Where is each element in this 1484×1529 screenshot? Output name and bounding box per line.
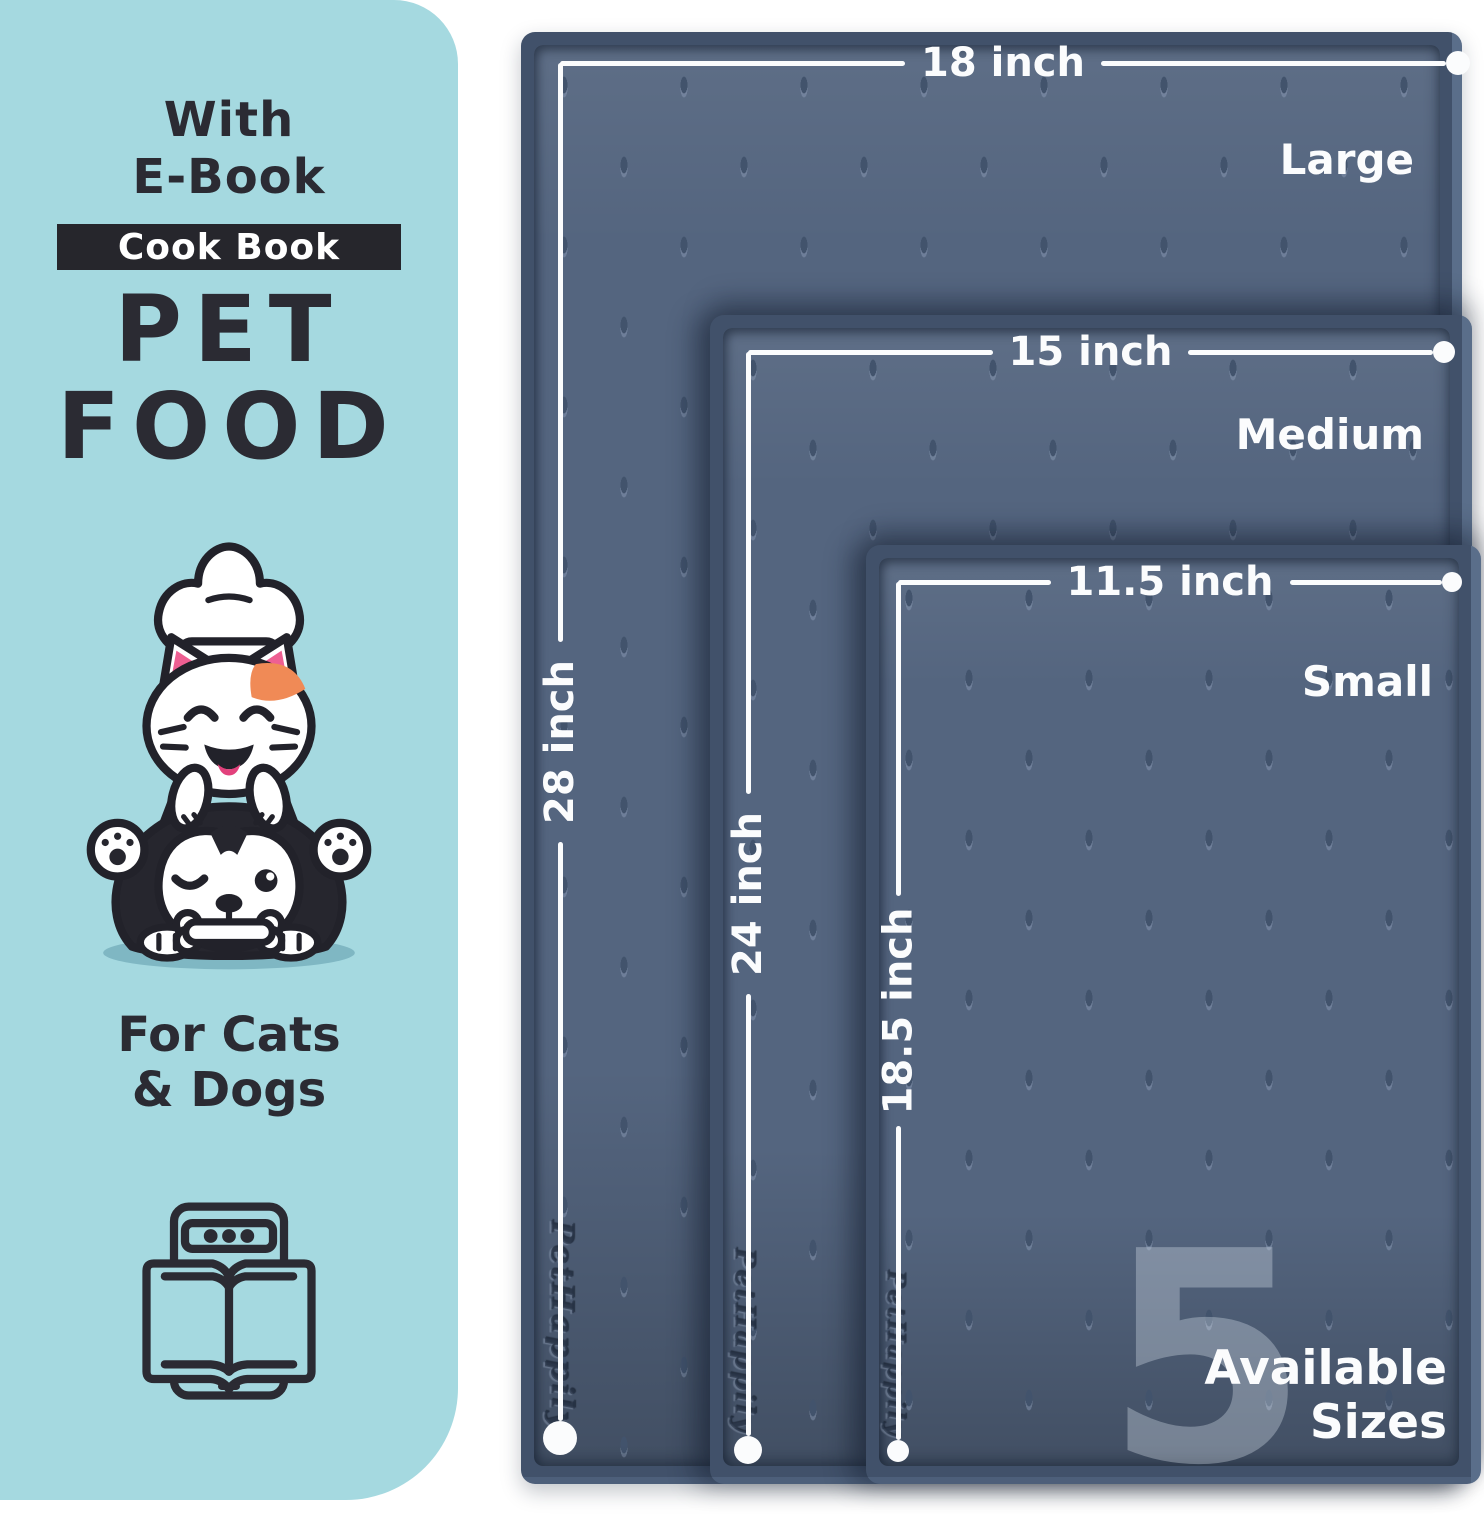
dimension-line xyxy=(746,994,751,1436)
dimension-line xyxy=(1101,61,1446,66)
mat-small-size-label: Small xyxy=(1302,657,1433,706)
dimension-line xyxy=(896,582,901,896)
height-dimension-label: 28 inch xyxy=(537,660,583,824)
dimension-line xyxy=(898,580,1051,585)
dimension-end-dot xyxy=(1446,51,1470,75)
husky-dog xyxy=(91,792,367,958)
audience: For Cats & Dogs xyxy=(0,1008,458,1118)
cookbook-badge-label: Cook Book xyxy=(118,227,340,268)
width-dimension-label: 18 inch xyxy=(905,40,1101,86)
dimension-line xyxy=(1188,350,1433,355)
dimension-line xyxy=(1290,580,1443,585)
cat-chef xyxy=(147,547,312,795)
cookbook-badge: Cook Book xyxy=(57,224,401,270)
product-title-line1: PET xyxy=(0,282,458,379)
width-dimension-label: 15 inch xyxy=(993,329,1189,375)
available-sizes-badge: 5 Available Sizes xyxy=(1111,1250,1451,1460)
mat-large-height-dimension: 28 inch xyxy=(538,63,582,1455)
mat-small: 11.5 inch 18.5 inch Small PetHappily 5 A… xyxy=(866,545,1481,1484)
dimension-end-dot xyxy=(1442,572,1462,592)
product-title: PET FOOD xyxy=(0,282,458,475)
dimension-line xyxy=(560,61,905,66)
headline-line1: With xyxy=(0,92,458,149)
audience-line1: For Cats xyxy=(0,1008,458,1063)
info-panel: With E-Book Cook Book PET FOOD xyxy=(0,0,458,1500)
width-dimension-label: 11.5 inch xyxy=(1051,559,1290,605)
mat-small-width-dimension: 11.5 inch xyxy=(898,560,1462,604)
mat-medium-size-label: Medium xyxy=(1236,410,1424,459)
headline: With E-Book xyxy=(0,92,458,205)
mat-medium-height-dimension: 24 inch xyxy=(726,352,770,1464)
ebook-icon xyxy=(119,1182,339,1422)
product-title-line2: FOOD xyxy=(0,379,458,476)
mat-small-height-dimension: 18.5 inch xyxy=(876,582,920,1462)
audience-line2: & Dogs xyxy=(0,1063,458,1118)
dimension-line xyxy=(558,63,563,642)
dimension-line xyxy=(746,352,751,794)
headline-line2: E-Book xyxy=(0,149,458,206)
cat-dog-chef-illustration xyxy=(64,468,394,988)
dimension-end-dot xyxy=(543,1421,577,1455)
dimension-line xyxy=(558,842,563,1421)
dimension-end-dot xyxy=(1433,341,1455,363)
mat-large-size-label: Large xyxy=(1280,135,1414,184)
dimension-end-dot xyxy=(887,1440,909,1462)
mat-large-width-dimension: 18 inch xyxy=(560,41,1470,85)
available-sizes-line2: Sizes xyxy=(1204,1396,1447,1450)
height-dimension-label: 18.5 inch xyxy=(875,908,921,1115)
dimension-end-dot xyxy=(734,1436,762,1464)
height-dimension-label: 24 inch xyxy=(725,812,771,976)
available-sizes-line1: Available xyxy=(1204,1342,1447,1396)
dimension-line xyxy=(748,350,993,355)
dimension-line xyxy=(896,1126,901,1440)
mat-medium-width-dimension: 15 inch xyxy=(748,330,1455,374)
